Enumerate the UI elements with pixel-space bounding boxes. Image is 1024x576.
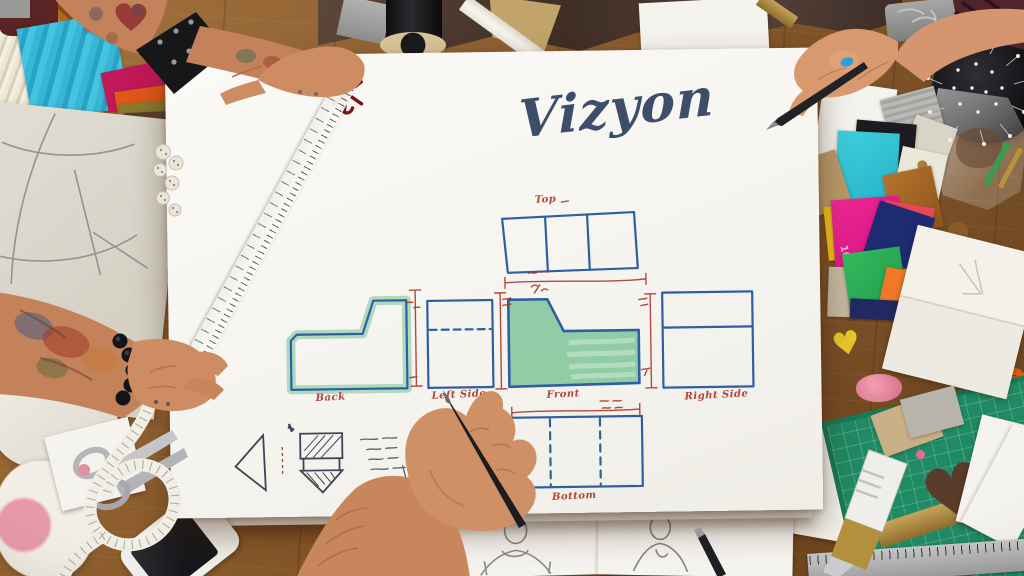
label-back: Back — [315, 392, 345, 404]
photo-fashion-design-workspace: 7 10 ♥ ♥ — [0, 0, 1024, 576]
pink-stone — [856, 374, 902, 402]
thumbnail-sketches — [235, 422, 407, 493]
sewing-pattern-paper — [0, 100, 185, 419]
green-marker — [290, 297, 639, 390]
canvas-board: Vizyon Top Back Left Side Front Right Si… — [165, 47, 823, 518]
handwritten-notes — [360, 437, 407, 482]
metal-tool-corner — [0, 0, 30, 18]
label-bottom: Bottom — [552, 490, 597, 503]
label-top: Top — [535, 194, 557, 206]
white-paper-top-right — [639, 0, 770, 55]
pattern-pencil-lines — [0, 100, 185, 419]
yellow-heart-pick: ♥ — [829, 323, 869, 363]
label-front: Front — [546, 388, 580, 401]
